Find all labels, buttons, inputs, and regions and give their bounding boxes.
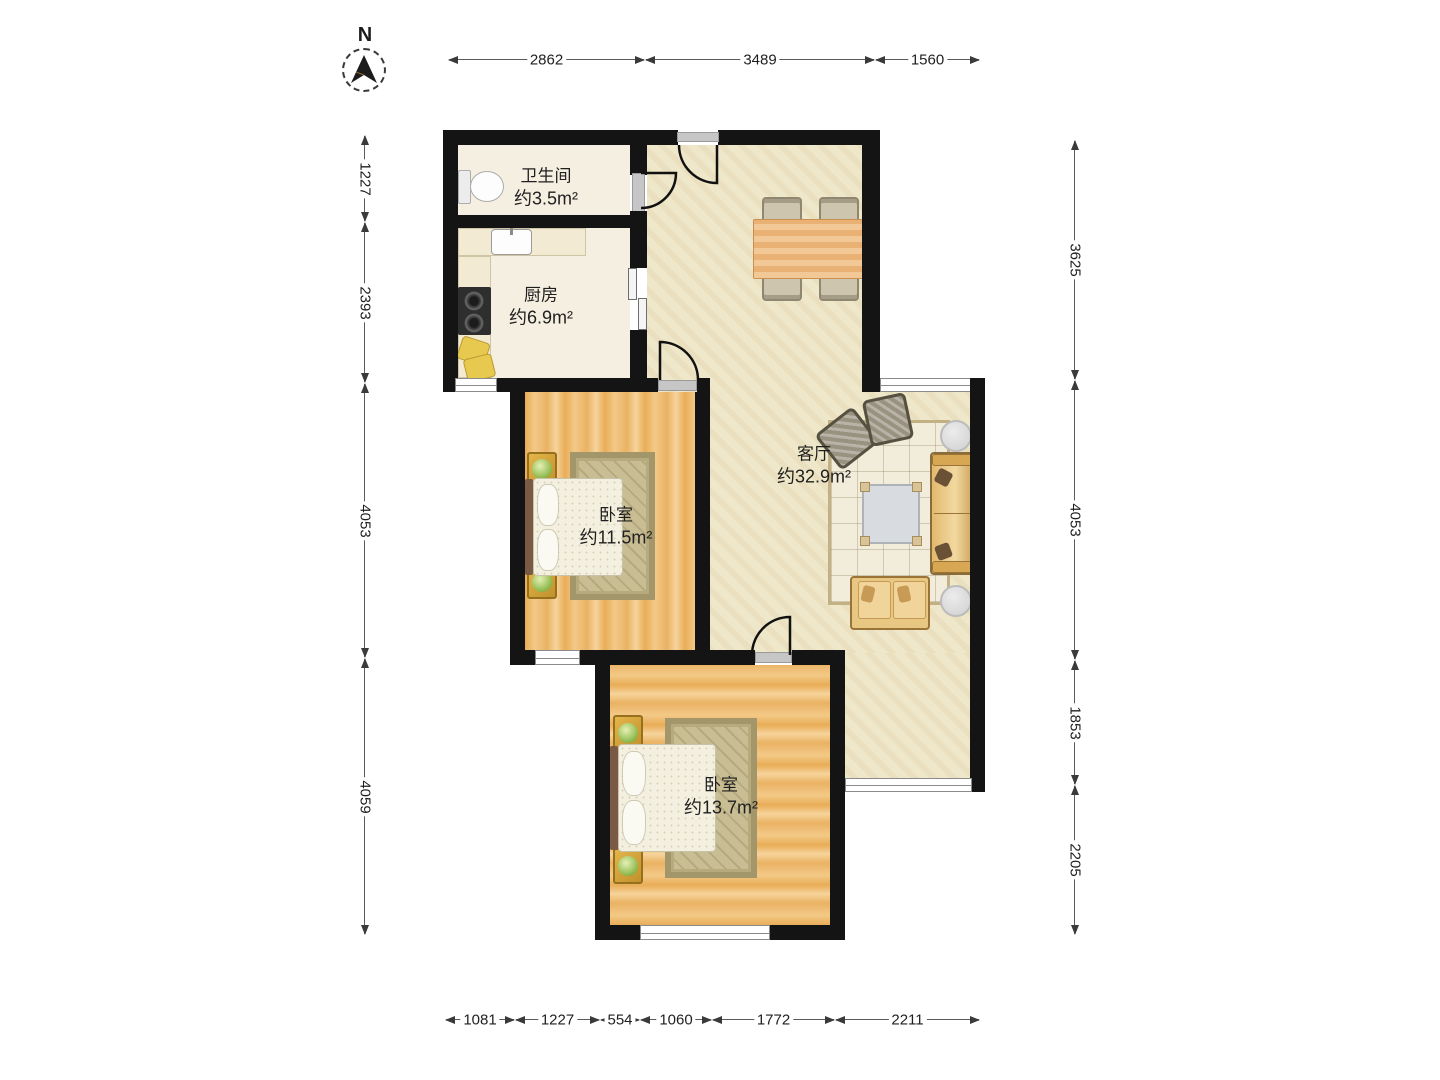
table-foot xyxy=(912,482,922,492)
table-foot xyxy=(860,536,870,546)
wall xyxy=(510,378,658,392)
dim-arrow-icon xyxy=(1071,140,1079,150)
dim-value: 4053 xyxy=(1067,500,1084,539)
dim-arrow-icon xyxy=(590,1016,600,1024)
side-table xyxy=(940,420,972,452)
dim-arrow-icon xyxy=(361,212,369,222)
pillow xyxy=(622,800,646,845)
room-label-bathroom: 卫生间 约3.5m² xyxy=(514,166,578,211)
dim-bottom-1: 1081 xyxy=(445,1012,515,1028)
dim-left-2: 2393 xyxy=(357,222,373,383)
wall xyxy=(830,665,845,940)
sofa-pillow xyxy=(933,467,953,487)
dim-arrow-icon xyxy=(361,373,369,383)
north-arrow-icon xyxy=(344,50,384,90)
dim-arrow-icon xyxy=(640,1016,650,1024)
dim-left-4: 4059 xyxy=(357,658,373,935)
bedroom-1-door xyxy=(658,340,700,382)
wall xyxy=(970,378,985,792)
dim-arrow-icon xyxy=(1071,925,1079,935)
dim-top-1: 2862 xyxy=(448,52,645,68)
window-bedroom-2 xyxy=(640,925,770,940)
dim-bottom-6: 2211 xyxy=(835,1012,980,1028)
dining-table xyxy=(753,219,870,279)
stove xyxy=(458,287,491,335)
dim-arrow-icon xyxy=(448,56,458,64)
dim-value: 2205 xyxy=(1067,840,1084,879)
dim-arrow-icon xyxy=(361,383,369,393)
room-name: 厨房 xyxy=(509,285,573,307)
dim-arrow-icon xyxy=(702,1016,712,1024)
dim-arrow-icon xyxy=(361,925,369,935)
lamp xyxy=(618,723,638,743)
sliding-door-panel xyxy=(638,298,647,330)
wall xyxy=(862,130,880,392)
compass-circle xyxy=(342,48,386,92)
dim-arrow-icon xyxy=(712,1016,722,1024)
wall xyxy=(718,130,880,145)
dim-arrow-icon xyxy=(445,1016,455,1024)
room-area: 约13.7m² xyxy=(684,796,758,819)
dim-arrow-icon xyxy=(1071,370,1079,380)
sofa-pillow xyxy=(934,542,953,561)
wall xyxy=(630,228,647,268)
room-label-kitchen: 厨房 约6.9m² xyxy=(509,285,573,330)
table-foot xyxy=(860,482,870,492)
burner xyxy=(464,291,484,311)
dim-arrow-icon xyxy=(361,135,369,145)
wall xyxy=(443,130,678,145)
wall xyxy=(630,211,647,228)
entrance-threshold xyxy=(677,132,719,142)
room-name: 卫生间 xyxy=(514,166,578,188)
entrance-door xyxy=(676,143,720,187)
room-area: 约3.5m² xyxy=(514,187,578,210)
room-label-bedroom-2: 卧室 约13.7m² xyxy=(684,775,758,820)
bedroom-2-door xyxy=(750,615,792,657)
dim-arrow-icon xyxy=(1071,660,1079,670)
dim-arrow-icon xyxy=(835,1016,845,1024)
dim-bottom-5: 1772 xyxy=(712,1012,835,1028)
dim-value: 2862 xyxy=(527,52,566,69)
dim-bottom-3: 554 xyxy=(600,1012,640,1028)
dim-right-4: 2205 xyxy=(1067,785,1083,935)
wall xyxy=(443,378,455,392)
dim-arrow-icon xyxy=(635,56,645,64)
dim-arrow-icon xyxy=(970,1016,980,1024)
compass-north-label: N xyxy=(343,24,387,47)
toilet xyxy=(470,171,504,202)
dim-top-3: 1560 xyxy=(875,52,980,68)
window-living-north xyxy=(880,378,972,392)
dim-bottom-2: 1227 xyxy=(515,1012,600,1028)
dim-arrow-icon xyxy=(505,1016,515,1024)
dim-value: 1060 xyxy=(656,1012,695,1029)
dim-value: 3625 xyxy=(1067,240,1084,279)
dim-value: 2393 xyxy=(357,283,374,322)
wall xyxy=(443,130,458,392)
wall xyxy=(510,650,535,665)
bed-headboard xyxy=(610,746,618,850)
floor-plan: N xyxy=(0,0,1440,1080)
wall xyxy=(862,378,880,392)
dim-right-2: 4053 xyxy=(1067,380,1083,660)
loveseat xyxy=(850,576,930,630)
nightstand xyxy=(613,848,643,884)
wall xyxy=(595,925,640,940)
dim-arrow-icon xyxy=(1071,380,1079,390)
room-name: 客厅 xyxy=(777,444,851,466)
wall xyxy=(595,650,610,940)
window-kitchen xyxy=(455,378,497,392)
dim-arrow-icon xyxy=(1071,650,1079,660)
pillow xyxy=(537,529,559,571)
dim-arrow-icon xyxy=(515,1016,525,1024)
dim-value: 554 xyxy=(604,1012,635,1029)
sofa-seam xyxy=(934,513,974,514)
dim-left-3: 4053 xyxy=(357,383,373,658)
room-name: 卧室 xyxy=(580,505,653,527)
dim-arrow-icon xyxy=(361,658,369,668)
wall xyxy=(450,215,647,228)
coffee-table xyxy=(862,484,920,544)
bed-headboard xyxy=(525,479,533,575)
dim-arrow-icon xyxy=(361,648,369,658)
side-table xyxy=(940,585,972,617)
dim-arrow-icon xyxy=(1071,785,1079,795)
dim-value: 1227 xyxy=(357,159,374,198)
dim-arrow-icon xyxy=(875,56,885,64)
pillow xyxy=(537,484,559,526)
dim-arrow-icon xyxy=(1071,775,1079,785)
lamp xyxy=(618,856,638,876)
wall xyxy=(510,378,525,665)
dim-left-1: 1227 xyxy=(357,135,373,222)
dim-right-3: 1853 xyxy=(1067,660,1083,785)
dim-value: 4059 xyxy=(357,777,374,816)
dim-right-1: 3625 xyxy=(1067,140,1083,380)
dim-arrow-icon xyxy=(970,56,980,64)
room-name: 卧室 xyxy=(684,775,758,797)
armchair xyxy=(862,392,915,447)
bathroom-door xyxy=(639,171,679,213)
lamp xyxy=(532,459,552,479)
dim-arrow-icon xyxy=(361,222,369,232)
dim-value: 1853 xyxy=(1067,703,1084,742)
dim-value: 1081 xyxy=(460,1012,499,1029)
dim-value: 4053 xyxy=(357,501,374,540)
dim-value: 2211 xyxy=(888,1012,926,1029)
room-label-bedroom-1: 卧室 约11.5m² xyxy=(580,505,653,550)
dim-arrow-icon xyxy=(645,56,655,64)
dim-top-2: 3489 xyxy=(645,52,875,68)
room-area: 约32.9m² xyxy=(777,465,851,488)
window-living-south xyxy=(845,778,972,792)
wall xyxy=(792,650,845,665)
window-bedroom-1 xyxy=(535,650,580,665)
pillow xyxy=(622,751,646,796)
dim-value: 3489 xyxy=(740,52,779,69)
wall xyxy=(695,392,710,653)
room-area: 约11.5m² xyxy=(580,526,653,549)
room-label-living: 客厅 约32.9m² xyxy=(777,444,851,489)
dim-arrow-icon xyxy=(865,56,875,64)
dim-value: 1560 xyxy=(908,52,947,69)
floor-living-room-south xyxy=(845,653,972,792)
table-foot xyxy=(912,536,922,546)
dim-arrow-icon xyxy=(825,1016,835,1024)
sliding-door-panel xyxy=(628,268,637,300)
room-area: 约6.9m² xyxy=(509,306,573,329)
dim-bottom-4: 1060 xyxy=(640,1012,712,1028)
dim-value: 1227 xyxy=(538,1012,577,1029)
dim-value: 1772 xyxy=(754,1012,793,1029)
burner xyxy=(464,313,484,333)
